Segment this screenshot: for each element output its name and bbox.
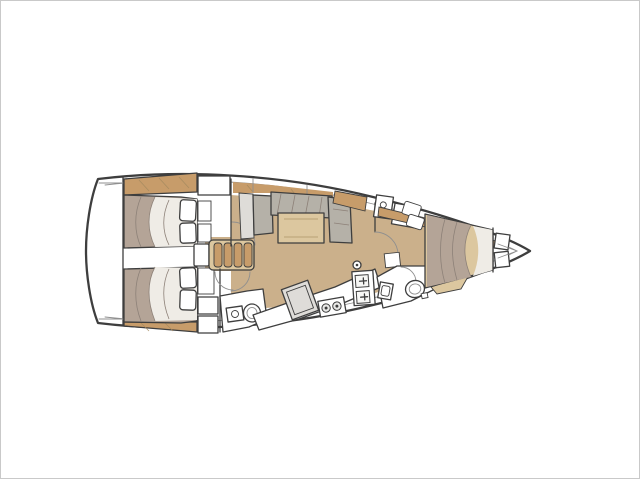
mast-post-center: [356, 264, 359, 267]
companionway: [194, 240, 254, 270]
toilet-flush: [421, 293, 428, 299]
locker-bg: [198, 297, 218, 314]
washbasin: [378, 282, 394, 300]
pillow: [179, 200, 196, 222]
aft-cabin-starboard: [124, 267, 218, 333]
shelf-unit: [198, 201, 211, 221]
hanging-locker-bg: [198, 176, 230, 195]
pillow: [180, 223, 197, 244]
bow-shelf: [494, 251, 509, 267]
settee-cushion-left: [253, 195, 273, 235]
locker-bg: [198, 316, 218, 333]
bottom-step: [194, 244, 209, 266]
floor-plan-image: Sailing yacht interior layout floor plan…: [0, 0, 640, 479]
pillow: [179, 268, 196, 289]
settee-backrest: [239, 193, 254, 239]
pillow: [180, 290, 197, 311]
stair-step: [234, 243, 242, 267]
shelf-unit: [198, 268, 214, 294]
washbasin: [226, 306, 244, 322]
duvet: [427, 215, 471, 287]
shelf-unit: [198, 224, 211, 242]
double-sink: [352, 270, 375, 305]
salon-table: [278, 213, 324, 243]
stair-step: [214, 243, 222, 267]
stair-step: [244, 243, 252, 267]
hull-shelf: [124, 322, 197, 332]
yacht-floor-plan: [1, 1, 639, 478]
